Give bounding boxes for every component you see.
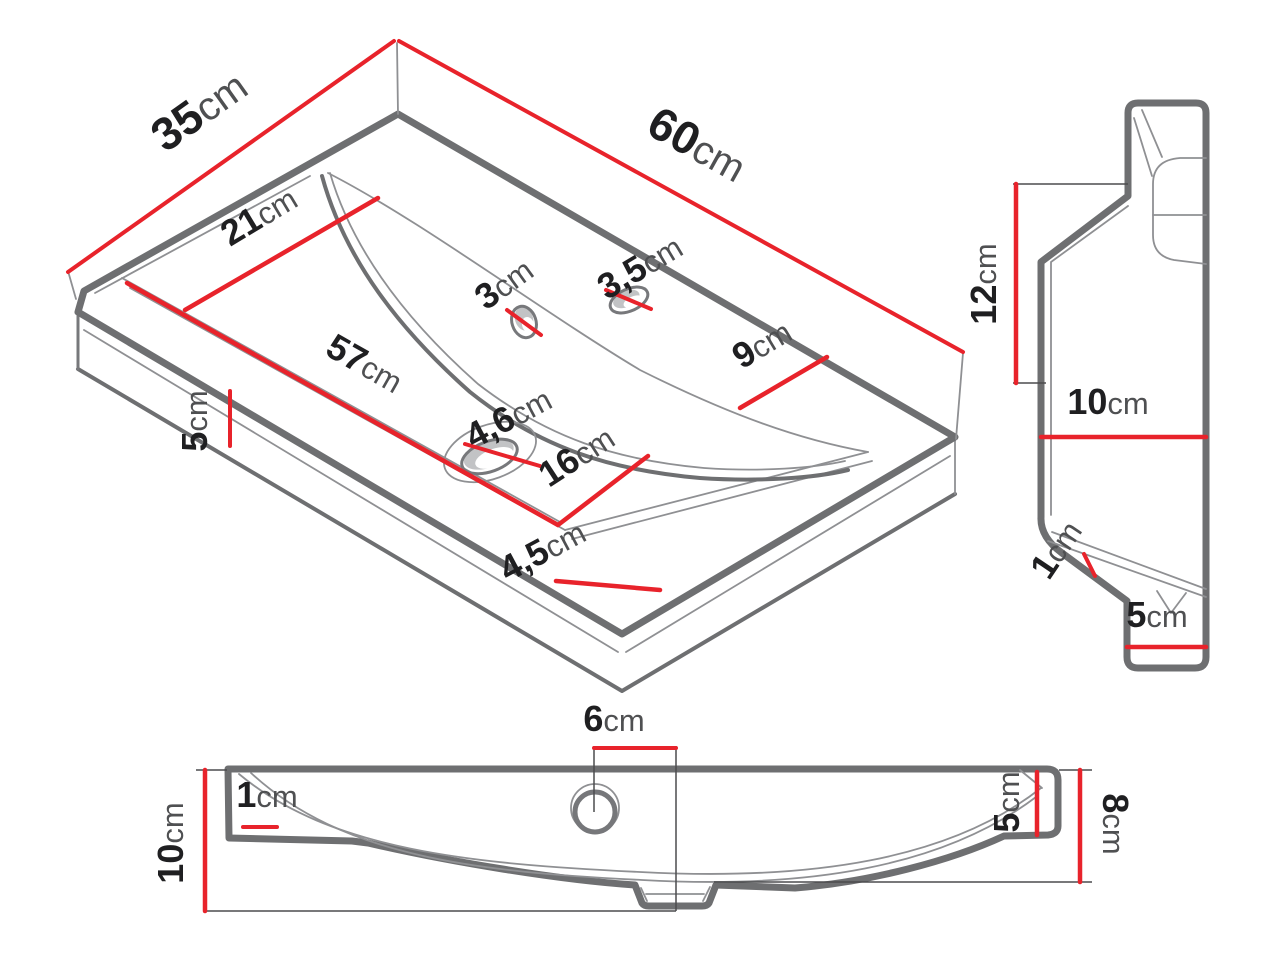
- washbasin-dimension-drawing: 35cm 60cm 21cm 3cm 3,5cm 9cm 57cm 5cm 4,…: [0, 0, 1280, 960]
- dim-5cm-front-label: 5cm: [986, 771, 1027, 832]
- dim-12cm-label: 12cm: [963, 243, 1004, 324]
- ext-line-apex: [397, 43, 398, 114]
- dim-35cm-label: 35cm: [141, 58, 256, 161]
- dim-10cm-side-label: 10cm: [1067, 381, 1148, 422]
- side-profile-view: 12cm 10cm 1cm 5cm: [963, 103, 1206, 668]
- front-view: 6cm 1cm 10cm 5cm 8cm: [150, 698, 1136, 911]
- technical-drawing-canvas: 35cm 60cm 21cm 3cm 3,5cm 9cm 57cm 5cm 4,…: [0, 0, 1280, 960]
- faucet-hole-front: [575, 792, 615, 832]
- dim-5cm-side-label: 5cm: [1126, 594, 1187, 635]
- isometric-view: 35cm 60cm 21cm 3cm 3,5cm 9cm 57cm 5cm 4,…: [68, 41, 963, 691]
- dim-1cm-front-label: 1cm: [236, 774, 297, 815]
- dim-8cm-label: 8cm: [1095, 793, 1136, 854]
- ext-line-right: [956, 353, 963, 439]
- dim-60cm-label: 60cm: [639, 96, 756, 192]
- front-outline: [228, 769, 1058, 906]
- dim-5cm-thickness-label: 5cm: [174, 390, 215, 451]
- ext-line-left: [68, 271, 76, 299]
- dim-10cm-front-label: 10cm: [150, 802, 191, 883]
- dim-6cm-label: 6cm: [583, 698, 644, 739]
